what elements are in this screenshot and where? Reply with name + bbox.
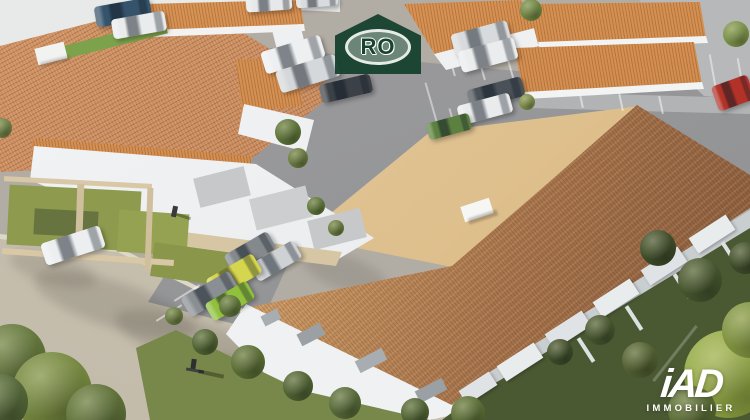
tree (219, 295, 241, 317)
tree (231, 345, 265, 379)
tree (283, 371, 313, 401)
tree (678, 258, 722, 302)
ro-watermark-badge: RO (335, 14, 421, 74)
tree (401, 398, 429, 420)
iad-brand-text: iAD (632, 366, 750, 402)
tree (520, 0, 542, 21)
tree (288, 148, 308, 168)
tree (328, 220, 344, 236)
ro-watermark-text: RO (361, 36, 396, 58)
aerial-render-canvas: RO iAD IMMOBILIER (0, 0, 750, 420)
tree (329, 387, 361, 419)
tree (723, 21, 749, 47)
tree (165, 307, 183, 325)
tree (307, 197, 325, 215)
tree (585, 315, 615, 345)
tree (192, 329, 218, 355)
tree (275, 119, 301, 145)
ro-ellipse-ring: RO (345, 29, 411, 65)
tree (519, 94, 535, 110)
tree (547, 339, 573, 365)
tree (640, 230, 676, 266)
iad-logo: iAD IMMOBILIER (634, 366, 748, 414)
